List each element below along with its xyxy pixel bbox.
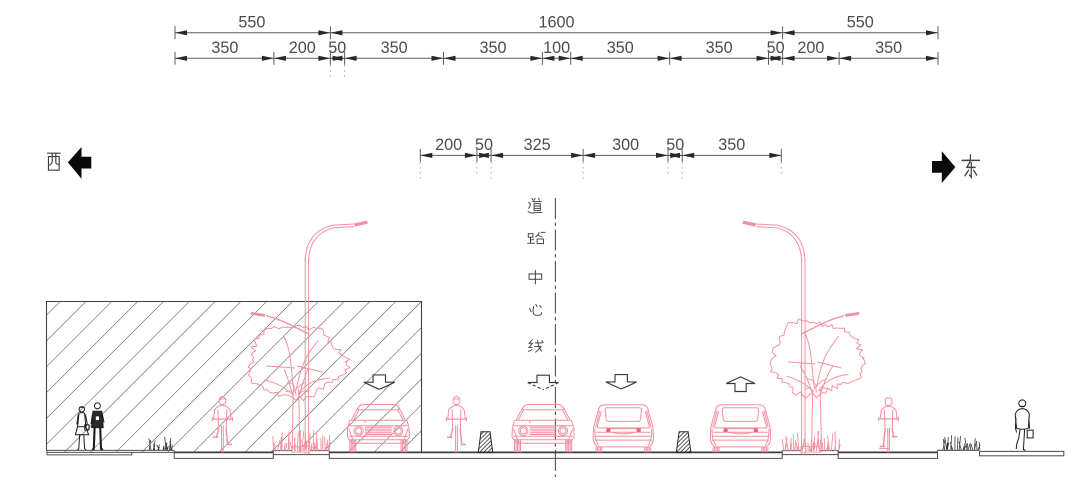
svg-text:350: 350 [607,39,634,57]
svg-text:350: 350 [718,136,745,154]
svg-text:50: 50 [475,136,493,154]
svg-text:1600: 1600 [538,14,574,32]
svg-text:325: 325 [524,136,551,154]
svg-text:300: 300 [612,136,639,154]
svg-text:50: 50 [666,136,684,154]
svg-text:50: 50 [328,39,346,57]
svg-text:50: 50 [767,39,785,57]
svg-text:100: 100 [543,39,570,57]
svg-text:550: 550 [847,14,874,32]
svg-text:200: 200 [435,136,462,154]
svg-text:350: 350 [211,39,238,57]
svg-text:350: 350 [706,39,733,57]
svg-text:350: 350 [875,39,902,57]
svg-text:550: 550 [238,14,265,32]
svg-text:350: 350 [381,39,408,57]
svg-text:350: 350 [479,39,506,57]
svg-text:200: 200 [289,39,316,57]
svg-text:200: 200 [797,39,824,57]
